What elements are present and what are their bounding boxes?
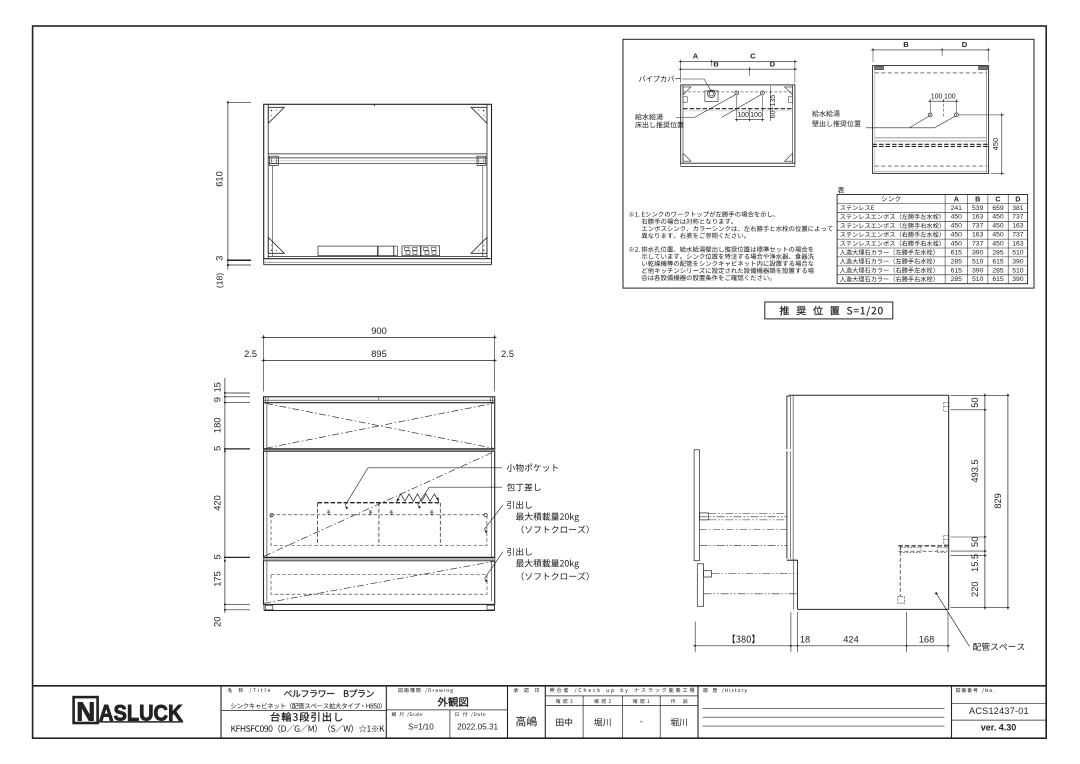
svg-text:220: 220 — [970, 581, 980, 597]
svg-text:450: 450 — [951, 214, 963, 221]
svg-text:510: 510 — [1012, 267, 1024, 274]
svg-text:510: 510 — [972, 258, 984, 265]
svg-text:610: 610 — [215, 171, 225, 187]
svg-text:B: B — [903, 40, 909, 49]
svg-text:450: 450 — [991, 138, 1000, 151]
svg-text:ACS12437-01: ACS12437-01 — [969, 706, 1029, 716]
svg-text:50: 50 — [970, 537, 980, 547]
svg-text:D: D — [962, 40, 968, 49]
svg-text:450: 450 — [951, 223, 963, 230]
svg-text:2.5: 2.5 — [501, 349, 514, 359]
svg-text:390: 390 — [1012, 276, 1024, 283]
svg-text:450: 450 — [992, 232, 1004, 239]
svg-text:163: 163 — [972, 214, 984, 221]
svg-text:285: 285 — [951, 258, 963, 265]
svg-text:2022.05.31: 2022.05.31 — [457, 723, 498, 732]
svg-text:3: 3 — [215, 256, 225, 261]
svg-text:737: 737 — [972, 241, 984, 248]
svg-text:510: 510 — [972, 276, 984, 283]
svg-text:895: 895 — [371, 349, 387, 359]
svg-text:285: 285 — [992, 249, 1004, 256]
svg-text:9: 9 — [213, 397, 223, 402]
svg-text:390: 390 — [1012, 258, 1024, 265]
svg-text:ver. 4.30: ver. 4.30 — [981, 723, 1017, 733]
svg-text:15: 15 — [213, 382, 223, 392]
svg-text:15.5: 15.5 — [970, 554, 980, 572]
svg-text:168: 168 — [919, 635, 935, 645]
svg-text:C: C — [750, 52, 756, 61]
svg-text:450: 450 — [951, 241, 963, 248]
svg-text:A: A — [954, 194, 959, 203]
svg-text:D: D — [770, 59, 776, 68]
svg-text:737: 737 — [972, 223, 984, 230]
svg-text:450: 450 — [992, 241, 1004, 248]
svg-text:S=1/10: S=1/10 — [408, 722, 434, 731]
svg-text:615: 615 — [951, 249, 963, 256]
svg-text:163: 163 — [972, 232, 984, 239]
svg-text:420: 420 — [213, 495, 223, 511]
svg-text:B: B — [713, 59, 719, 68]
svg-text:(18): (18) — [215, 273, 225, 288]
svg-text:390: 390 — [972, 267, 984, 274]
svg-text:-: - — [640, 717, 643, 727]
svg-text:180: 180 — [213, 418, 223, 434]
svg-text:241: 241 — [951, 205, 963, 212]
svg-text:900: 900 — [371, 326, 387, 336]
svg-text:B: B — [975, 194, 980, 203]
svg-text:539: 539 — [972, 205, 984, 212]
svg-text:450: 450 — [992, 223, 1004, 230]
svg-text:18: 18 — [800, 635, 810, 645]
svg-text:615: 615 — [992, 276, 1004, 283]
svg-text:5: 5 — [213, 554, 223, 559]
svg-text:737: 737 — [1012, 232, 1024, 239]
svg-text:163: 163 — [1012, 241, 1024, 248]
svg-text:510: 510 — [1012, 249, 1024, 256]
svg-text:60~135: 60~135 — [770, 95, 777, 119]
svg-text:615: 615 — [992, 258, 1004, 265]
svg-text:381: 381 — [1012, 205, 1024, 212]
svg-text:100: 100 — [944, 94, 956, 101]
svg-text:20: 20 — [213, 617, 223, 627]
svg-text:C: C — [995, 194, 1000, 203]
svg-text:450: 450 — [992, 214, 1004, 221]
svg-text:829: 829 — [993, 493, 1003, 509]
svg-text:5: 5 — [213, 446, 223, 451]
svg-text:100: 100 — [737, 112, 749, 119]
svg-text:D: D — [1015, 194, 1020, 203]
svg-text:100: 100 — [750, 112, 762, 119]
svg-text:424: 424 — [843, 635, 859, 645]
svg-text:390: 390 — [972, 249, 984, 256]
svg-text:493.5: 493.5 — [970, 459, 980, 482]
svg-text:659: 659 — [992, 205, 1004, 212]
svg-text:450: 450 — [951, 232, 963, 239]
svg-text:100: 100 — [931, 94, 943, 101]
svg-text:50: 50 — [970, 397, 980, 407]
svg-text:285: 285 — [992, 267, 1004, 274]
svg-text:A: A — [693, 52, 699, 61]
svg-text:285: 285 — [951, 276, 963, 283]
svg-text:163: 163 — [1012, 223, 1024, 230]
svg-text:615: 615 — [951, 267, 963, 274]
svg-text:737: 737 — [1012, 214, 1024, 221]
svg-text:2.5: 2.5 — [244, 349, 257, 359]
svg-text:175: 175 — [213, 571, 223, 587]
svg-text:N: N — [76, 696, 95, 726]
